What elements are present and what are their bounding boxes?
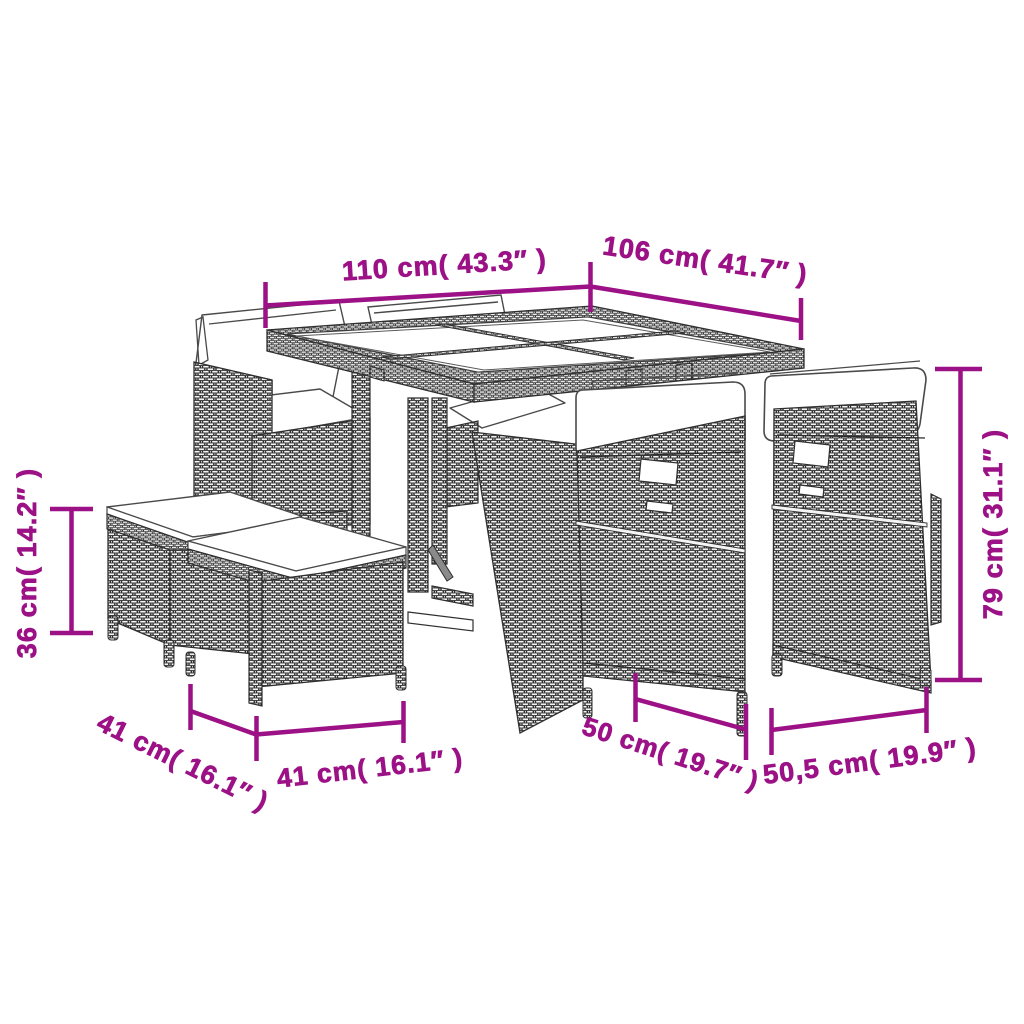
svg-text:79 cm( 31.1″ ): 79 cm( 31.1″ ) <box>978 429 1008 619</box>
svg-text:36 cm( 14.2″ ): 36 cm( 14.2″ ) <box>12 468 42 658</box>
